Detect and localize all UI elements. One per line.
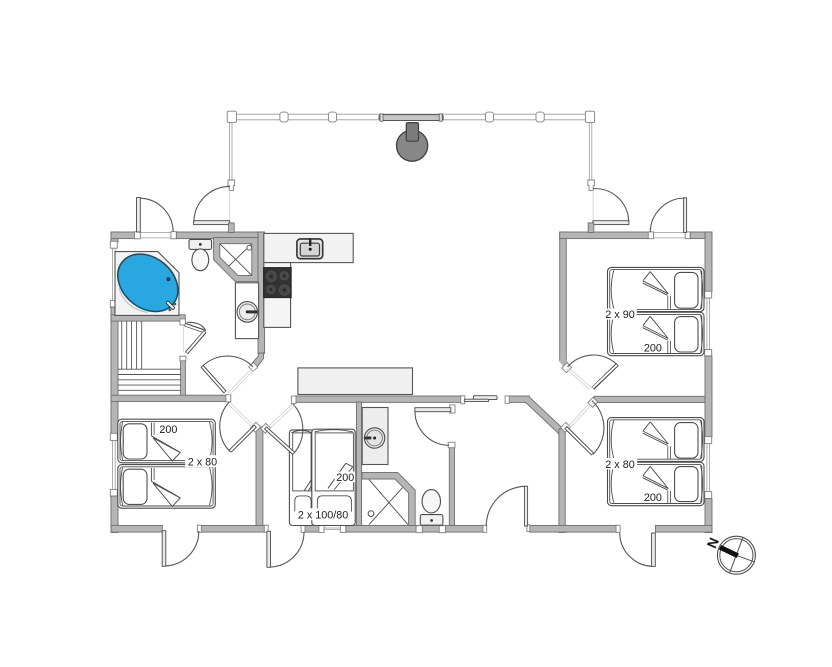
svg-text:2 x 80: 2 x 80 <box>188 456 217 468</box>
svg-text:200: 200 <box>644 343 662 355</box>
svg-text:200: 200 <box>159 424 177 436</box>
svg-text:2 x 90: 2 x 90 <box>605 309 634 321</box>
svg-text:2 x 100/80: 2 x 100/80 <box>298 509 348 521</box>
svg-text:200: 200 <box>644 492 662 504</box>
svg-text:2 x 80: 2 x 80 <box>605 459 634 471</box>
svg-text:200: 200 <box>336 472 354 484</box>
